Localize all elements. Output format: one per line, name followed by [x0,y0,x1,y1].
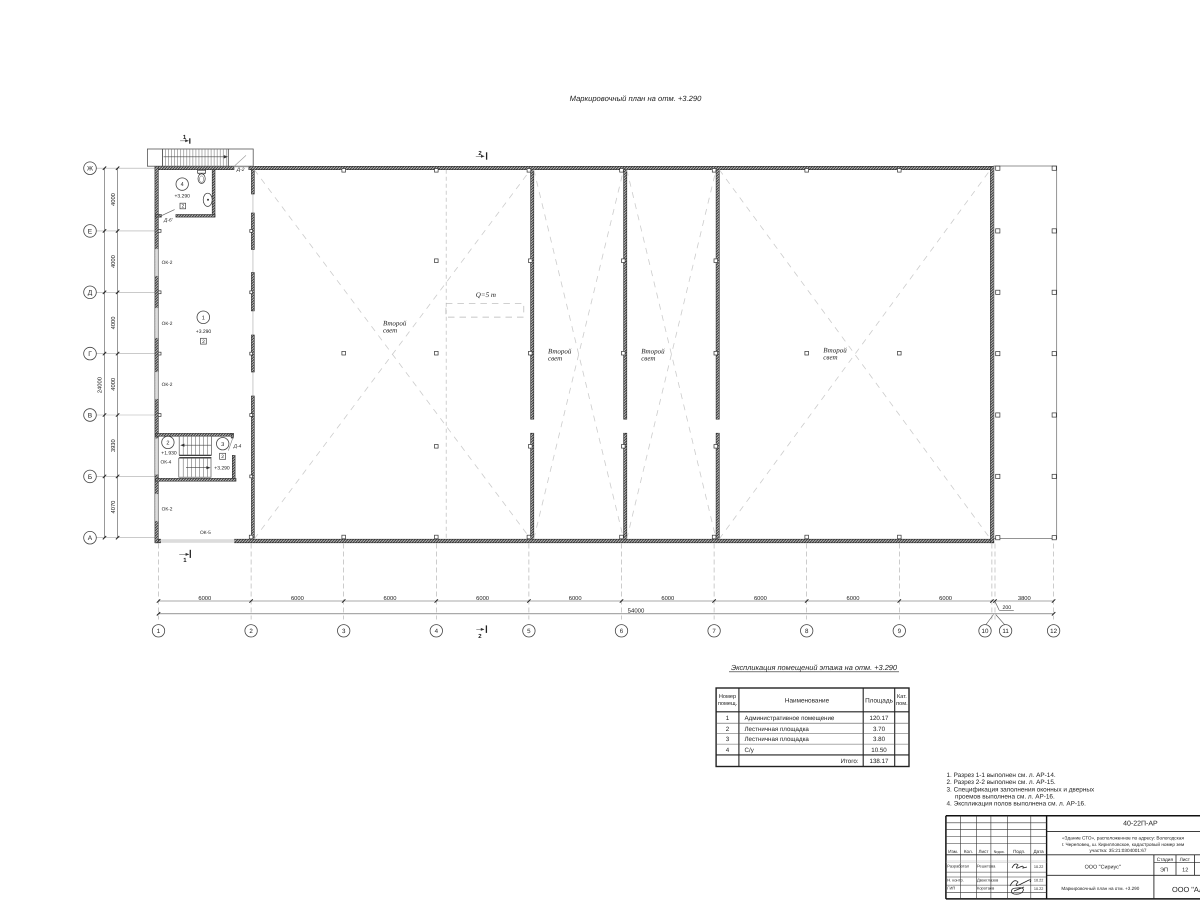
svg-text:6000: 6000 [754,595,767,602]
svg-text:40-22П-АР: 40-22П-АР [1123,821,1158,828]
svg-text:10.50: 10.50 [871,747,887,754]
svg-text:6000: 6000 [476,595,489,602]
svg-text:4070: 4070 [110,501,117,514]
svg-text:Кат.: Кат. [897,694,907,700]
svg-text:Лестничная площадка: Лестничная площадка [745,726,810,733]
svg-text:2: 2 [181,204,184,210]
svg-text:Е: Е [88,228,93,235]
svg-text:В: В [88,412,93,419]
svg-text:3930: 3930 [110,439,117,452]
svg-text:Площадь: Площадь [865,697,893,704]
svg-text:ООО "Сириус": ООО "Сириус" [1085,864,1121,870]
svg-text:138.17: 138.17 [870,758,889,765]
svg-text:4: 4 [726,747,730,754]
svg-text:свет: свет [383,326,397,334]
svg-text:10.22: 10.22 [1034,887,1044,891]
svg-text:12: 12 [1182,867,1188,873]
svg-text:свет: свет [823,353,837,361]
svg-text:3.80: 3.80 [873,736,886,743]
svg-text:пом.: пом. [896,701,908,707]
svg-text:6000: 6000 [939,595,952,602]
svg-text:3: 3 [221,442,224,448]
svg-text:участка: 35:21:0304001:67: участка: 35:21:0304001:67 [1089,848,1146,853]
svg-text:Г: Г [88,351,92,358]
svg-text:ОК-2: ОК-2 [162,506,173,512]
svg-text:г. Череповец, ш. Кирилловское,: г. Череповец, ш. Кирилловское, кадастров… [1062,842,1184,847]
svg-text:120.17: 120.17 [870,715,889,722]
svg-text:24000: 24000 [97,377,104,393]
svg-text:Маркировочный план на отм. +3.: Маркировочный план на отм. +3.290 [570,94,702,103]
svg-text:Кол.: Кол. [964,849,973,854]
svg-text:4000: 4000 [110,378,117,391]
svg-text:4: 4 [435,628,439,635]
svg-text:ОК-2: ОК-2 [162,321,173,327]
svg-text:Лист: Лист [1180,857,1191,863]
svg-text:Разработал: Разработал [947,864,969,869]
svg-text:Д: Д [88,290,93,297]
svg-text:4000: 4000 [110,255,117,268]
svg-text:ОК-5: ОК-5 [200,530,211,536]
svg-text:3800: 3800 [1018,595,1031,602]
svg-text:1: 1 [202,316,205,322]
svg-text:6: 6 [620,628,624,635]
svg-text:2: 2 [249,628,253,635]
svg-text:Административное помещение: Административное помещение [745,715,835,722]
svg-text:+1.930: +1.930 [161,450,177,456]
svg-text:ЭП: ЭП [1160,867,1168,873]
svg-text:Д-6': Д-6' [163,217,174,223]
svg-text:2: 2 [166,441,169,447]
svg-text:Двоеглазов: Двоеглазов [977,877,998,882]
svg-text:С/у: С/у [745,747,755,754]
svg-text:ОК-4: ОК-4 [161,460,172,466]
svg-text:Решетова: Решетова [977,864,996,869]
svg-text:5: 5 [527,628,531,635]
svg-text:4000: 4000 [110,193,117,206]
svg-text:6000: 6000 [661,595,674,602]
svg-text:54000: 54000 [628,607,645,614]
svg-text:Стадия: Стадия [1157,857,1174,863]
svg-text:проемов выполнена см. л. АР-16: проемов выполнена см. л. АР-16. [955,793,1055,800]
svg-text:А: А [88,535,93,542]
svg-text:Д-2: Д-2 [236,167,245,173]
svg-text:«Здание СТО», расположенное по: «Здание СТО», расположенное по адресу: В… [1062,836,1184,841]
svg-text:4: 4 [181,182,184,188]
svg-text:Изм.: Изм. [948,849,958,854]
svg-text:Подп.: Подп. [1013,849,1025,854]
svg-text:3: 3 [726,736,730,743]
svg-text:Б: Б [88,474,92,481]
svg-text:12: 12 [1050,628,1057,635]
svg-text:Номер: Номер [719,694,736,700]
svg-text:7: 7 [712,628,716,635]
svg-text:Д-4: Д-4 [233,443,242,449]
svg-text:ГИП: ГИП [947,886,955,891]
svg-text:ООО "Ал: ООО "Ал [1172,885,1200,894]
svg-text:Наименование: Наименование [785,697,830,704]
svg-text:свет: свет [641,354,655,362]
svg-text:2: 2 [221,454,224,460]
svg-text:2: 2 [202,339,205,345]
svg-text:Н. контр.: Н. контр. [947,877,964,882]
svg-text:Маркировочный план на отм. +3.: Маркировочный план на отм. +3.290 [1061,886,1139,891]
svg-text:Лист: Лист [979,849,990,854]
svg-text:6000: 6000 [847,595,860,602]
svg-text:ОК-2: ОК-2 [162,382,173,388]
svg-text:1: 1 [726,715,730,722]
svg-text:Экспликация помещений этажа на: Экспликация помещений этажа на отм. +3.2… [731,663,898,672]
svg-text:1: 1 [157,628,161,635]
svg-text:4000: 4000 [110,316,117,329]
svg-text:6000: 6000 [569,595,582,602]
svg-text:2: 2 [726,726,730,733]
svg-text:8: 8 [805,628,809,635]
svg-text:2. Разрез 2-2 выполнен см. л.: 2. Разрез 2-2 выполнен см. л. АР-15. [947,779,1056,786]
svg-text:+3.290: +3.290 [196,329,212,335]
svg-text:+3.290: +3.290 [174,194,190,200]
svg-text:10.22: 10.22 [1034,879,1044,883]
svg-text:Ж: Ж [87,166,93,173]
svg-text:Дата: Дата [1034,849,1045,854]
svg-text:4. Экспликация полов выполнена: 4. Экспликация полов выполнена см. л. АР… [947,800,1087,807]
svg-text:3: 3 [342,628,346,635]
svg-text:6000: 6000 [384,595,397,602]
svg-text:№док.: №док. [994,850,1005,854]
svg-text:6000: 6000 [291,595,304,602]
svg-text:ОК-2: ОК-2 [162,260,173,266]
svg-text:9: 9 [898,628,902,635]
svg-text:11: 11 [1002,628,1009,635]
svg-text:10: 10 [982,628,989,635]
svg-text:6000: 6000 [198,595,211,602]
svg-text:помещ.: помещ. [718,701,738,707]
svg-text:3.70: 3.70 [873,726,886,733]
svg-text:Итого:: Итого: [841,758,859,765]
svg-text:+3.290: +3.290 [214,466,230,472]
svg-text:10.22: 10.22 [1034,865,1044,869]
svg-text:Лестничная площадка: Лестничная площадка [745,736,810,743]
svg-text:200: 200 [1002,605,1011,611]
svg-text:Коротаев: Коротаев [977,886,994,891]
svg-text:свет: свет [548,354,562,362]
svg-text:Q=5 т: Q=5 т [476,291,496,299]
